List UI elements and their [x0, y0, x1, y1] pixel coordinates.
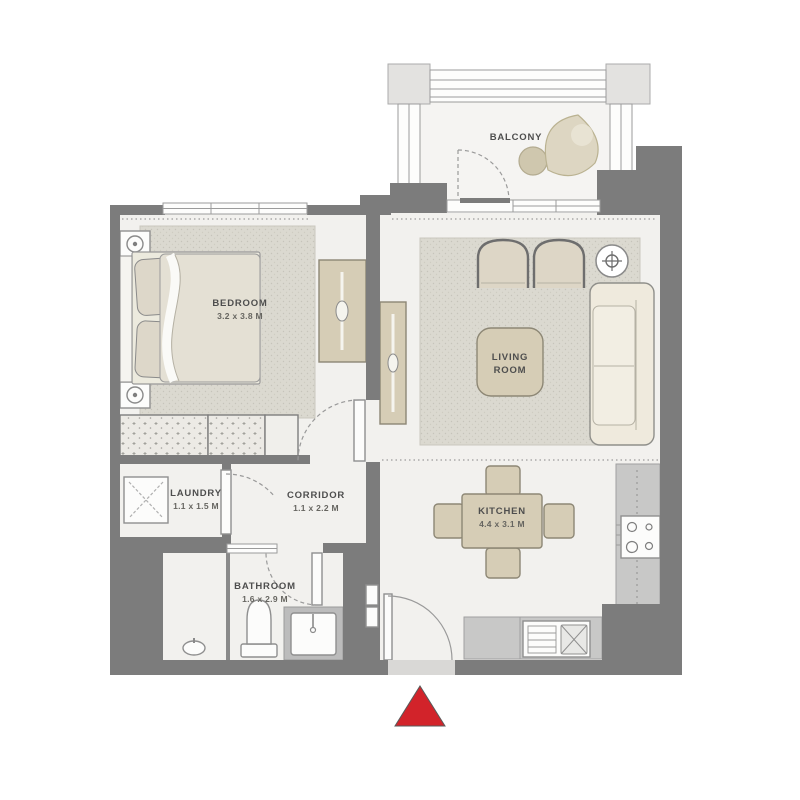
- entrance-threshold: [388, 660, 455, 675]
- dining-chair-top: [486, 466, 520, 496]
- balcony-pillar-right: [606, 64, 650, 104]
- living-room-window: [513, 200, 600, 212]
- bedroom-dresser: [319, 260, 366, 362]
- balcony-pillar-left: [388, 64, 430, 104]
- bathroom-window-slot: [227, 544, 277, 553]
- shower: [284, 607, 343, 660]
- nightstand-bottom: [120, 382, 150, 408]
- kitchen-sink: [523, 621, 590, 657]
- armchair-left: [478, 240, 528, 288]
- living-console: [380, 302, 406, 424]
- entrance-marker-triangle: [395, 686, 445, 726]
- entrance-door-leaf: [384, 594, 392, 660]
- kitchen-counter-right: [616, 464, 660, 610]
- bathroom-dims: 1.6 x 2.9 M: [242, 594, 288, 604]
- floor-lamp: [596, 245, 628, 277]
- wall-corner-top-right: [597, 170, 682, 215]
- armchair-right: [534, 240, 584, 288]
- balcony-label: BALCONY: [490, 132, 543, 143]
- living-room-label-line1: LIVING: [492, 352, 528, 363]
- laundry-door-leaf: [221, 470, 231, 534]
- balcony-railing-top: [430, 70, 606, 102]
- balcony-railing-left: [398, 104, 420, 196]
- wall-bottom-right: [455, 660, 682, 675]
- living-room-label-line2: ROOM: [494, 365, 527, 376]
- corridor-label: CORRIDOR: [287, 490, 345, 501]
- bedroom-dims: 3.2 x 3.8 M: [217, 311, 263, 321]
- floor-plan-page: BALCONY BEDROOM 3.2 x 3.8 M LIVING ROOM …: [0, 0, 800, 800]
- bathroom-door-leaf: [312, 553, 322, 605]
- kitchen-dims: 4.4 x 3.1 M: [479, 519, 525, 529]
- stove: [616, 516, 660, 558]
- laundry-label: LAUNDRY: [170, 488, 222, 499]
- washing-machine: [124, 477, 168, 523]
- dining-chair-left: [434, 504, 464, 538]
- balcony-table: [519, 147, 547, 175]
- balcony-pier-left: [390, 183, 447, 215]
- balcony-plant-highlight: [571, 124, 593, 146]
- laundry-area: [124, 477, 168, 523]
- laundry-dims: 1.1 x 1.5 M: [173, 501, 219, 511]
- bathroom-sink: [183, 641, 205, 655]
- balcony-door-sill: [460, 198, 510, 203]
- sofa: [590, 283, 654, 445]
- utility-panel-bottom: [366, 607, 378, 627]
- wall-bottom-left: [110, 660, 388, 675]
- wall-right: [660, 213, 682, 660]
- bedroom-label: BEDROOM: [212, 298, 267, 309]
- bedroom-door-leaf: [354, 400, 365, 461]
- wall-left: [110, 205, 120, 675]
- living-room-area: [380, 238, 654, 445]
- wardrobe: [120, 415, 298, 457]
- bed-headboard: [120, 256, 132, 382]
- bathroom-label: BATHROOM: [234, 581, 296, 592]
- corridor-dims: 1.1 x 2.2 M: [293, 503, 339, 513]
- dining-chair-right: [544, 504, 574, 538]
- floor-plan-drawing: BALCONY BEDROOM 3.2 x 3.8 M LIVING ROOM …: [0, 0, 800, 800]
- kitchen-counter-bottom: [464, 617, 602, 659]
- bedroom-window: [163, 203, 307, 214]
- utility-panel-top: [366, 585, 378, 605]
- kitchen-label: KITCHEN: [478, 506, 526, 517]
- dining-chair-bottom: [486, 548, 520, 578]
